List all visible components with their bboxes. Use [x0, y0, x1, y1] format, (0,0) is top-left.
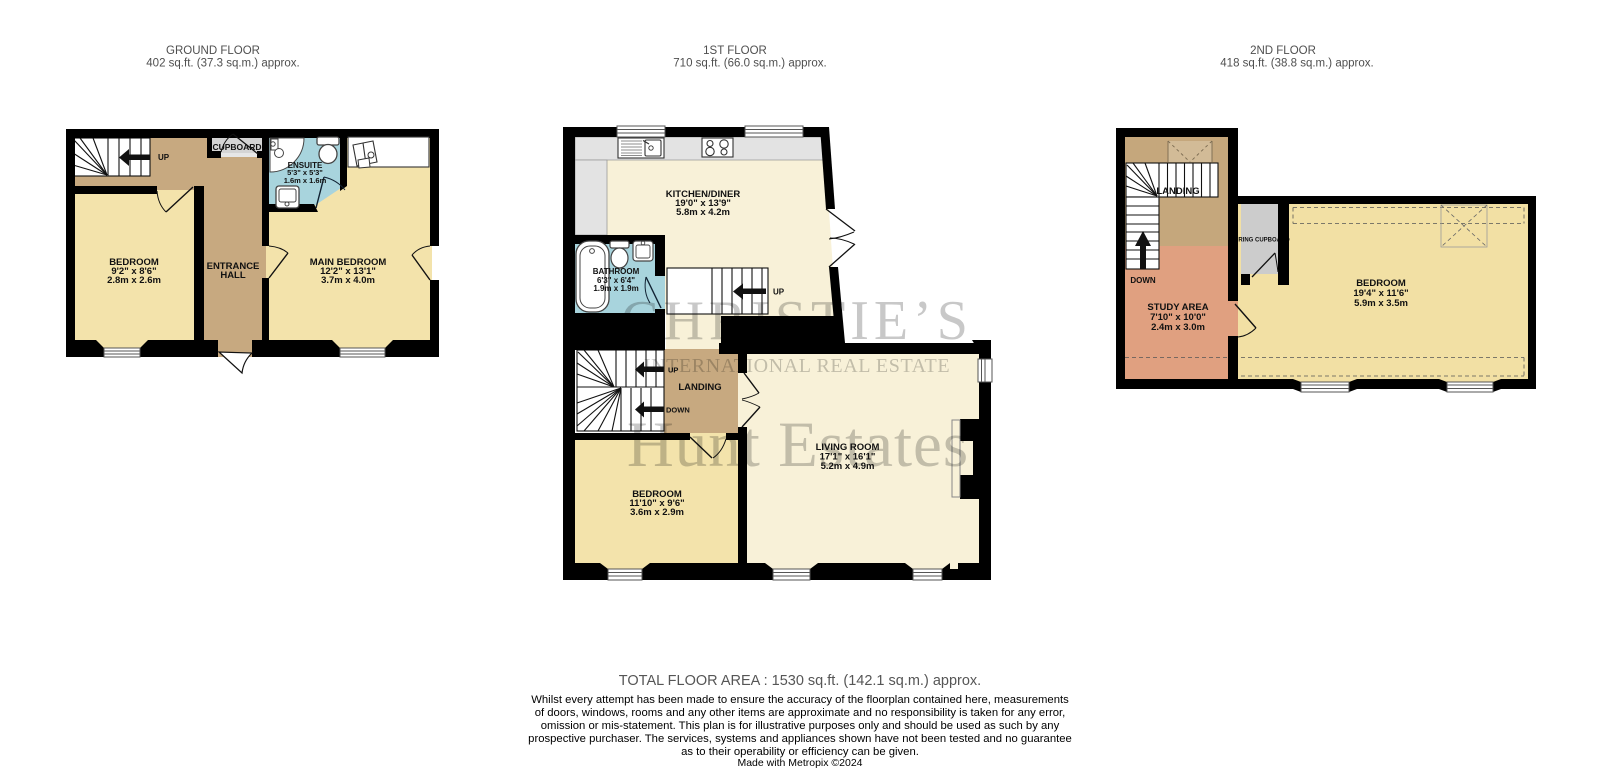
svg-text:2ND FLOOR: 2ND FLOOR	[1250, 45, 1316, 57]
svg-text:prospective purchaser. The ser: prospective purchaser. The services, sys…	[528, 733, 1072, 745]
svg-text:INTERNATIONAL REAL ESTATE: INTERNATIONAL REAL ESTATE	[644, 355, 950, 377]
svg-text:710 sq.ft. (66.0 sq.m.) approx: 710 sq.ft. (66.0 sq.m.) approx.	[673, 58, 826, 70]
svg-text:DOWN: DOWN	[1130, 276, 1156, 285]
svg-text:3.6m x 2.9m: 3.6m x 2.9m	[630, 507, 684, 518]
svg-text:omission or mis-statement. Thi: omission or mis-statement. This plan is …	[541, 720, 1060, 732]
svg-text:TOTAL FLOOR AREA : 1530 sq.ft.: TOTAL FLOOR AREA : 1530 sq.ft. (142.1 sq…	[619, 673, 981, 689]
svg-text:3.7m x 4.0m: 3.7m x 4.0m	[321, 275, 375, 286]
svg-text:2.4m x 3.0m: 2.4m x 3.0m	[1151, 322, 1205, 333]
svg-text:2.8m x 2.6m: 2.8m x 2.6m	[107, 275, 161, 286]
svg-text:Whilst every attempt has been: Whilst every attempt has been made to en…	[531, 694, 1069, 706]
svg-text:Made with Metropix ©2024: Made with Metropix ©2024	[737, 757, 862, 769]
svg-text:BATHROOM: BATHROOM	[593, 267, 640, 276]
svg-text:UP: UP	[158, 153, 170, 162]
svg-text:LANDING: LANDING	[678, 382, 721, 393]
svg-text:GROUND FLOOR: GROUND FLOOR	[166, 45, 260, 57]
svg-text:1.6m x 1.6m: 1.6m x 1.6m	[284, 176, 327, 185]
svg-text:Hunt Estates: Hunt Estates	[627, 409, 969, 481]
svg-text:1ST FLOOR: 1ST FLOOR	[703, 45, 767, 57]
svg-text:HALL: HALL	[220, 270, 246, 281]
svg-text:of doors, windows, rooms and a: of doors, windows, rooms and any other i…	[535, 707, 1066, 719]
svg-text:CHRISTIE’S: CHRISTIE’S	[621, 290, 973, 352]
svg-text:5.9m x 3.5m: 5.9m x 3.5m	[1354, 298, 1408, 309]
svg-text:LANDING: LANDING	[1156, 186, 1199, 197]
svg-text:402 sq.ft. (37.3 sq.m.) approx: 402 sq.ft. (37.3 sq.m.) approx.	[146, 58, 299, 70]
svg-text:5.8m x 4.2m: 5.8m x 4.2m	[676, 207, 730, 218]
svg-text:418 sq.ft. (38.8 sq.m.) approx: 418 sq.ft. (38.8 sq.m.) approx.	[1220, 58, 1373, 70]
